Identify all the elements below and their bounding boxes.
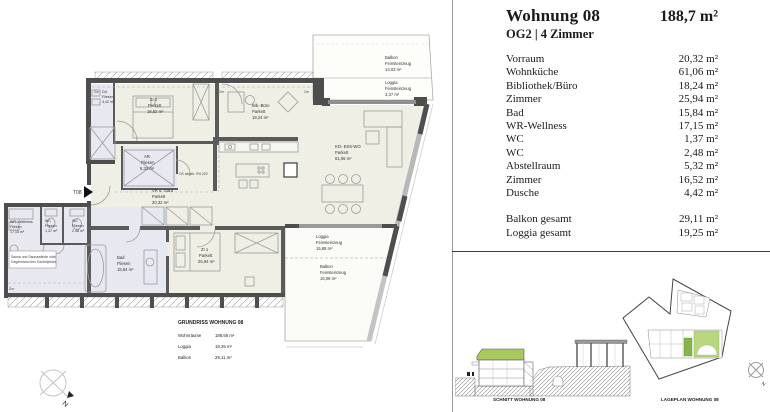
horizontal-divider — [452, 251, 770, 252]
glass-band-top — [328, 100, 416, 104]
svg-text:Fliesen: Fliesen — [141, 160, 155, 165]
sauna-note-line2: Gegenstand des Kaufobjektes — [11, 260, 57, 264]
svg-text:61,06 m²: 61,06 m² — [335, 156, 352, 161]
sauna-note-line1: Sauna und Saunawände nicht — [11, 255, 56, 259]
entry-label: T08 — [73, 190, 82, 196]
room-area-table: Vorraum20,32 m² Wohnküche61,06 m² Biblio… — [506, 53, 718, 240]
svg-text:Feinsteinzeug: Feinsteinzeug — [385, 86, 412, 91]
svg-text:3,37 m²: 3,37 m² — [385, 92, 400, 97]
marker-2m-4: 2m — [9, 287, 14, 291]
glass-band-end-r — [382, 224, 397, 228]
svg-text:Balkon: Balkon — [320, 264, 333, 269]
table-gap — [506, 200, 718, 213]
table-row: Vorraum20,32 m² — [506, 53, 718, 66]
schnitt-green-roof — [477, 349, 524, 360]
balkon-top-outline — [313, 35, 433, 100]
window-band-top-left — [95, 72, 213, 79]
svg-text:29,11 m²: 29,11 m² — [215, 355, 232, 360]
window-band-top-right — [222, 72, 313, 79]
lageplan-drawing: LAGEPLAN WOHNUNG 08 — [623, 279, 731, 402]
svg-text:4,42 m²: 4,42 m² — [102, 100, 115, 104]
schnitt-drawing: SCHNITT WOHNUNG 08 — [455, 340, 630, 402]
table-row: Dusche4,42 m² — [506, 187, 718, 200]
lageplan-caption: LAGEPLAN WOHNUNG 08 — [661, 397, 719, 402]
svg-text:17,15 m²: 17,15 m² — [10, 230, 25, 234]
table-row: Abstellraum5,32 m² — [506, 160, 718, 173]
svg-text:Fliesen: Fliesen — [72, 224, 84, 228]
svg-text:ZI 1: ZI 1 — [201, 247, 209, 252]
svg-text:Fliesen: Fliesen — [102, 95, 114, 99]
svg-text:ZI 2: ZI 2 — [150, 97, 158, 102]
svg-text:N: N — [61, 400, 69, 409]
svg-text:19,25 m²: 19,25 m² — [215, 344, 233, 349]
table-row-total: Balkon gesamt29,11 m² — [506, 213, 718, 226]
north-compass-small-icon: N — [749, 363, 767, 389]
svg-text:Fliesen: Fliesen — [45, 224, 57, 228]
svg-text:Parkett: Parkett — [199, 253, 213, 258]
svg-text:Parkett: Parkett — [252, 109, 266, 114]
svg-text:Bib.-Büro: Bib.-Büro — [252, 103, 270, 108]
svg-text:KO- ESS-WO: KO- ESS-WO — [335, 144, 361, 149]
ceiling-note: OK abgeh. RH 220 — [179, 172, 208, 176]
svg-text:Fliesen: Fliesen — [117, 261, 131, 266]
svg-text:25,94 m²: 25,94 m² — [198, 259, 215, 264]
glass-band-loggia — [285, 224, 397, 228]
svg-text:Bad: Bad — [117, 255, 125, 260]
svg-text:WR.-Wellness: WR.-Wellness — [10, 220, 33, 224]
marker-2m-3: 2m — [304, 90, 309, 94]
lageplan-unit-highlight — [684, 338, 692, 356]
north-compass-icon: N — [40, 370, 74, 409]
svg-text:DU: DU — [102, 90, 108, 94]
svg-text:188,66 m²: 188,66 m² — [215, 333, 235, 338]
svg-text:18,24 m²: 18,24 m² — [252, 115, 269, 120]
svg-text:16,08 m²: 16,08 m² — [320, 276, 337, 281]
apartment-subtitle: OG2 | 4 Zimmer — [506, 27, 718, 42]
table-row: Wohnküche61,06 m² — [506, 66, 718, 79]
area-panel: Wohnung 08 188,7 m² OG2 | 4 Zimmer Vorra… — [455, 0, 770, 251]
svg-text:Parkett: Parkett — [148, 103, 162, 108]
svg-text:Feinsteinzeug: Feinsteinzeug — [385, 61, 412, 66]
table-row: Zimmer25,94 m² — [506, 93, 718, 106]
plan-caption: GRUNDRISS WOHNUNG 08 Wohnräume 188,66 m²… — [178, 320, 244, 360]
table-row: Zimmer16,52 m² — [506, 174, 718, 187]
svg-text:Feinsteinzeug: Feinsteinzeug — [316, 240, 343, 245]
svg-text:15,88 m²: 15,88 m² — [316, 246, 333, 251]
schnitt-lageplan-drawings: SCHNITT WOHNUNG 08 LAGEPLAN WOHNUNG 08 — [455, 258, 770, 412]
svg-text:5,32 m²: 5,32 m² — [140, 166, 155, 171]
svg-text:Feinsteinzeug: Feinsteinzeug — [320, 270, 347, 275]
svg-text:GRUNDRISS WOHNUNG 08: GRUNDRISS WOHNUNG 08 — [178, 320, 244, 326]
schnitt-caption: SCHNITT WOHNUNG 08 — [493, 397, 546, 402]
marker-2m-2: 2m — [219, 90, 224, 94]
glass-band-end-l — [285, 224, 299, 228]
svg-text:13,03 m²: 13,03 m² — [385, 67, 402, 72]
svg-text:20,32 m²: 20,32 m² — [152, 200, 169, 205]
svg-text:Wohnräume: Wohnräume — [178, 333, 202, 338]
svg-text:WC: WC — [72, 219, 78, 223]
apartment-title: Wohnung 08 — [506, 6, 600, 26]
svg-text:N: N — [760, 381, 767, 388]
svg-text:Parkett: Parkett — [152, 194, 166, 199]
plan-sheet: Sauna und Saunawände nicht Gegenstand de… — [0, 0, 770, 412]
table-row: WC2,48 m² — [506, 147, 718, 160]
floor-plan-drawing: Sauna und Saunawände nicht Gegenstand de… — [0, 0, 452, 412]
svg-text:Parkett: Parkett — [335, 150, 349, 155]
table-row: WC1,37 m² — [506, 133, 718, 146]
table-row: WR-Wellness17,15 m² — [506, 120, 718, 133]
svg-text:Loggia: Loggia — [385, 80, 398, 85]
marker-2m-1: 2m — [94, 90, 99, 94]
vertical-divider — [452, 0, 453, 412]
svg-text:Loggia: Loggia — [316, 234, 329, 239]
svg-text:VR u. Gard: VR u. Gard — [152, 188, 174, 193]
table-row: Bibliothek/Büro18,24 m² — [506, 80, 718, 93]
svg-text:Balkon: Balkon — [385, 55, 398, 60]
svg-text:Balkon: Balkon — [178, 355, 192, 360]
svg-text:Fliesen: Fliesen — [10, 225, 22, 229]
total-area: 188,7 m² — [660, 8, 718, 26]
svg-text:16,52 m²: 16,52 m² — [147, 109, 164, 114]
svg-text:1,37 m²: 1,37 m² — [45, 229, 58, 233]
svg-text:2,48 m²: 2,48 m² — [72, 229, 85, 233]
svg-text:WC: WC — [45, 219, 51, 223]
window-band-bottom — [8, 297, 283, 307]
svg-text:AR: AR — [144, 154, 150, 159]
table-row: Bad15,84 m² — [506, 107, 718, 120]
table-row-total: Loggia gesamt19,25 m² — [506, 227, 718, 240]
svg-text:15,84 m²: 15,84 m² — [117, 267, 134, 272]
svg-text:Loggia: Loggia — [178, 344, 192, 349]
